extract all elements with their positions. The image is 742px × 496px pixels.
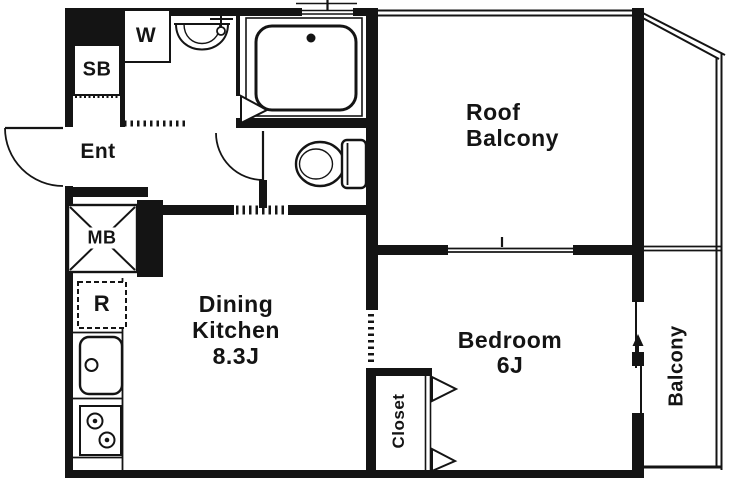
dining-kitchen-size: 8.3J xyxy=(192,343,280,369)
wall-ent-bottom xyxy=(65,187,148,197)
wall-washroom-bath xyxy=(236,8,240,96)
wall-toilet-left xyxy=(259,180,267,208)
toilet-icon xyxy=(296,140,366,188)
shoe-box-label: SB xyxy=(83,59,112,82)
wall-bath-bottom xyxy=(236,118,378,128)
dining-kitchen-line1: Dining xyxy=(192,291,280,317)
washing-machine-label: W xyxy=(136,24,156,48)
wall-hall-bottom-b xyxy=(288,205,366,215)
dining-kitchen-label: Dining Kitchen 8.3J xyxy=(192,291,280,369)
closet-label: Closet xyxy=(389,394,409,449)
slant-edge-outer xyxy=(635,9,725,55)
bathtub-icon xyxy=(256,26,356,110)
toilet-door-arc xyxy=(216,133,263,180)
roof-balcony-label: Roof Balcony xyxy=(466,99,559,151)
wall-closet-top xyxy=(366,368,432,376)
bedroom-label: Bedroom 6J xyxy=(458,328,562,378)
bedroom-east-window-arrow xyxy=(633,334,644,346)
dining-kitchen-line2: Kitchen xyxy=(192,317,280,343)
wall-bedroom-right-lower xyxy=(632,413,644,478)
bedroom-name: Bedroom xyxy=(458,328,562,353)
roof-balcony-line2: Balcony xyxy=(466,125,559,151)
wall-roofbalcony-right xyxy=(632,8,644,255)
wall-roofbalcony-bedroom-b xyxy=(573,245,632,255)
wall-wet-right xyxy=(366,8,378,310)
closet-door-arrow-top xyxy=(432,377,456,401)
wall-top-a xyxy=(65,8,302,16)
wall-bottom xyxy=(65,470,644,478)
entrance-door-arc xyxy=(5,128,63,186)
wall-closet-left xyxy=(366,368,376,470)
meter-box-label: MB xyxy=(86,228,119,249)
stove-icon xyxy=(80,406,121,455)
refrigerator-label: R xyxy=(94,291,110,317)
closet-door-arrow-bottom xyxy=(432,449,455,471)
wall-bedroom-right-upper xyxy=(632,255,644,302)
balcony-label: Balcony xyxy=(666,325,689,406)
entrance-label: Ent xyxy=(80,140,115,164)
bedroom-size: 6J xyxy=(458,353,562,378)
slant-edge-inner xyxy=(639,16,719,59)
kitchen-sink-icon xyxy=(80,337,122,394)
roof-balcony-line1: Roof xyxy=(466,99,559,125)
wall-roofbalcony-bedroom-a xyxy=(378,245,448,255)
floorplan: W SB Ent MB R Dining Kitchen 8.3J Roof B… xyxy=(0,0,742,496)
washbasin-icon xyxy=(174,12,233,50)
wall-meterbox-mass xyxy=(137,200,163,277)
